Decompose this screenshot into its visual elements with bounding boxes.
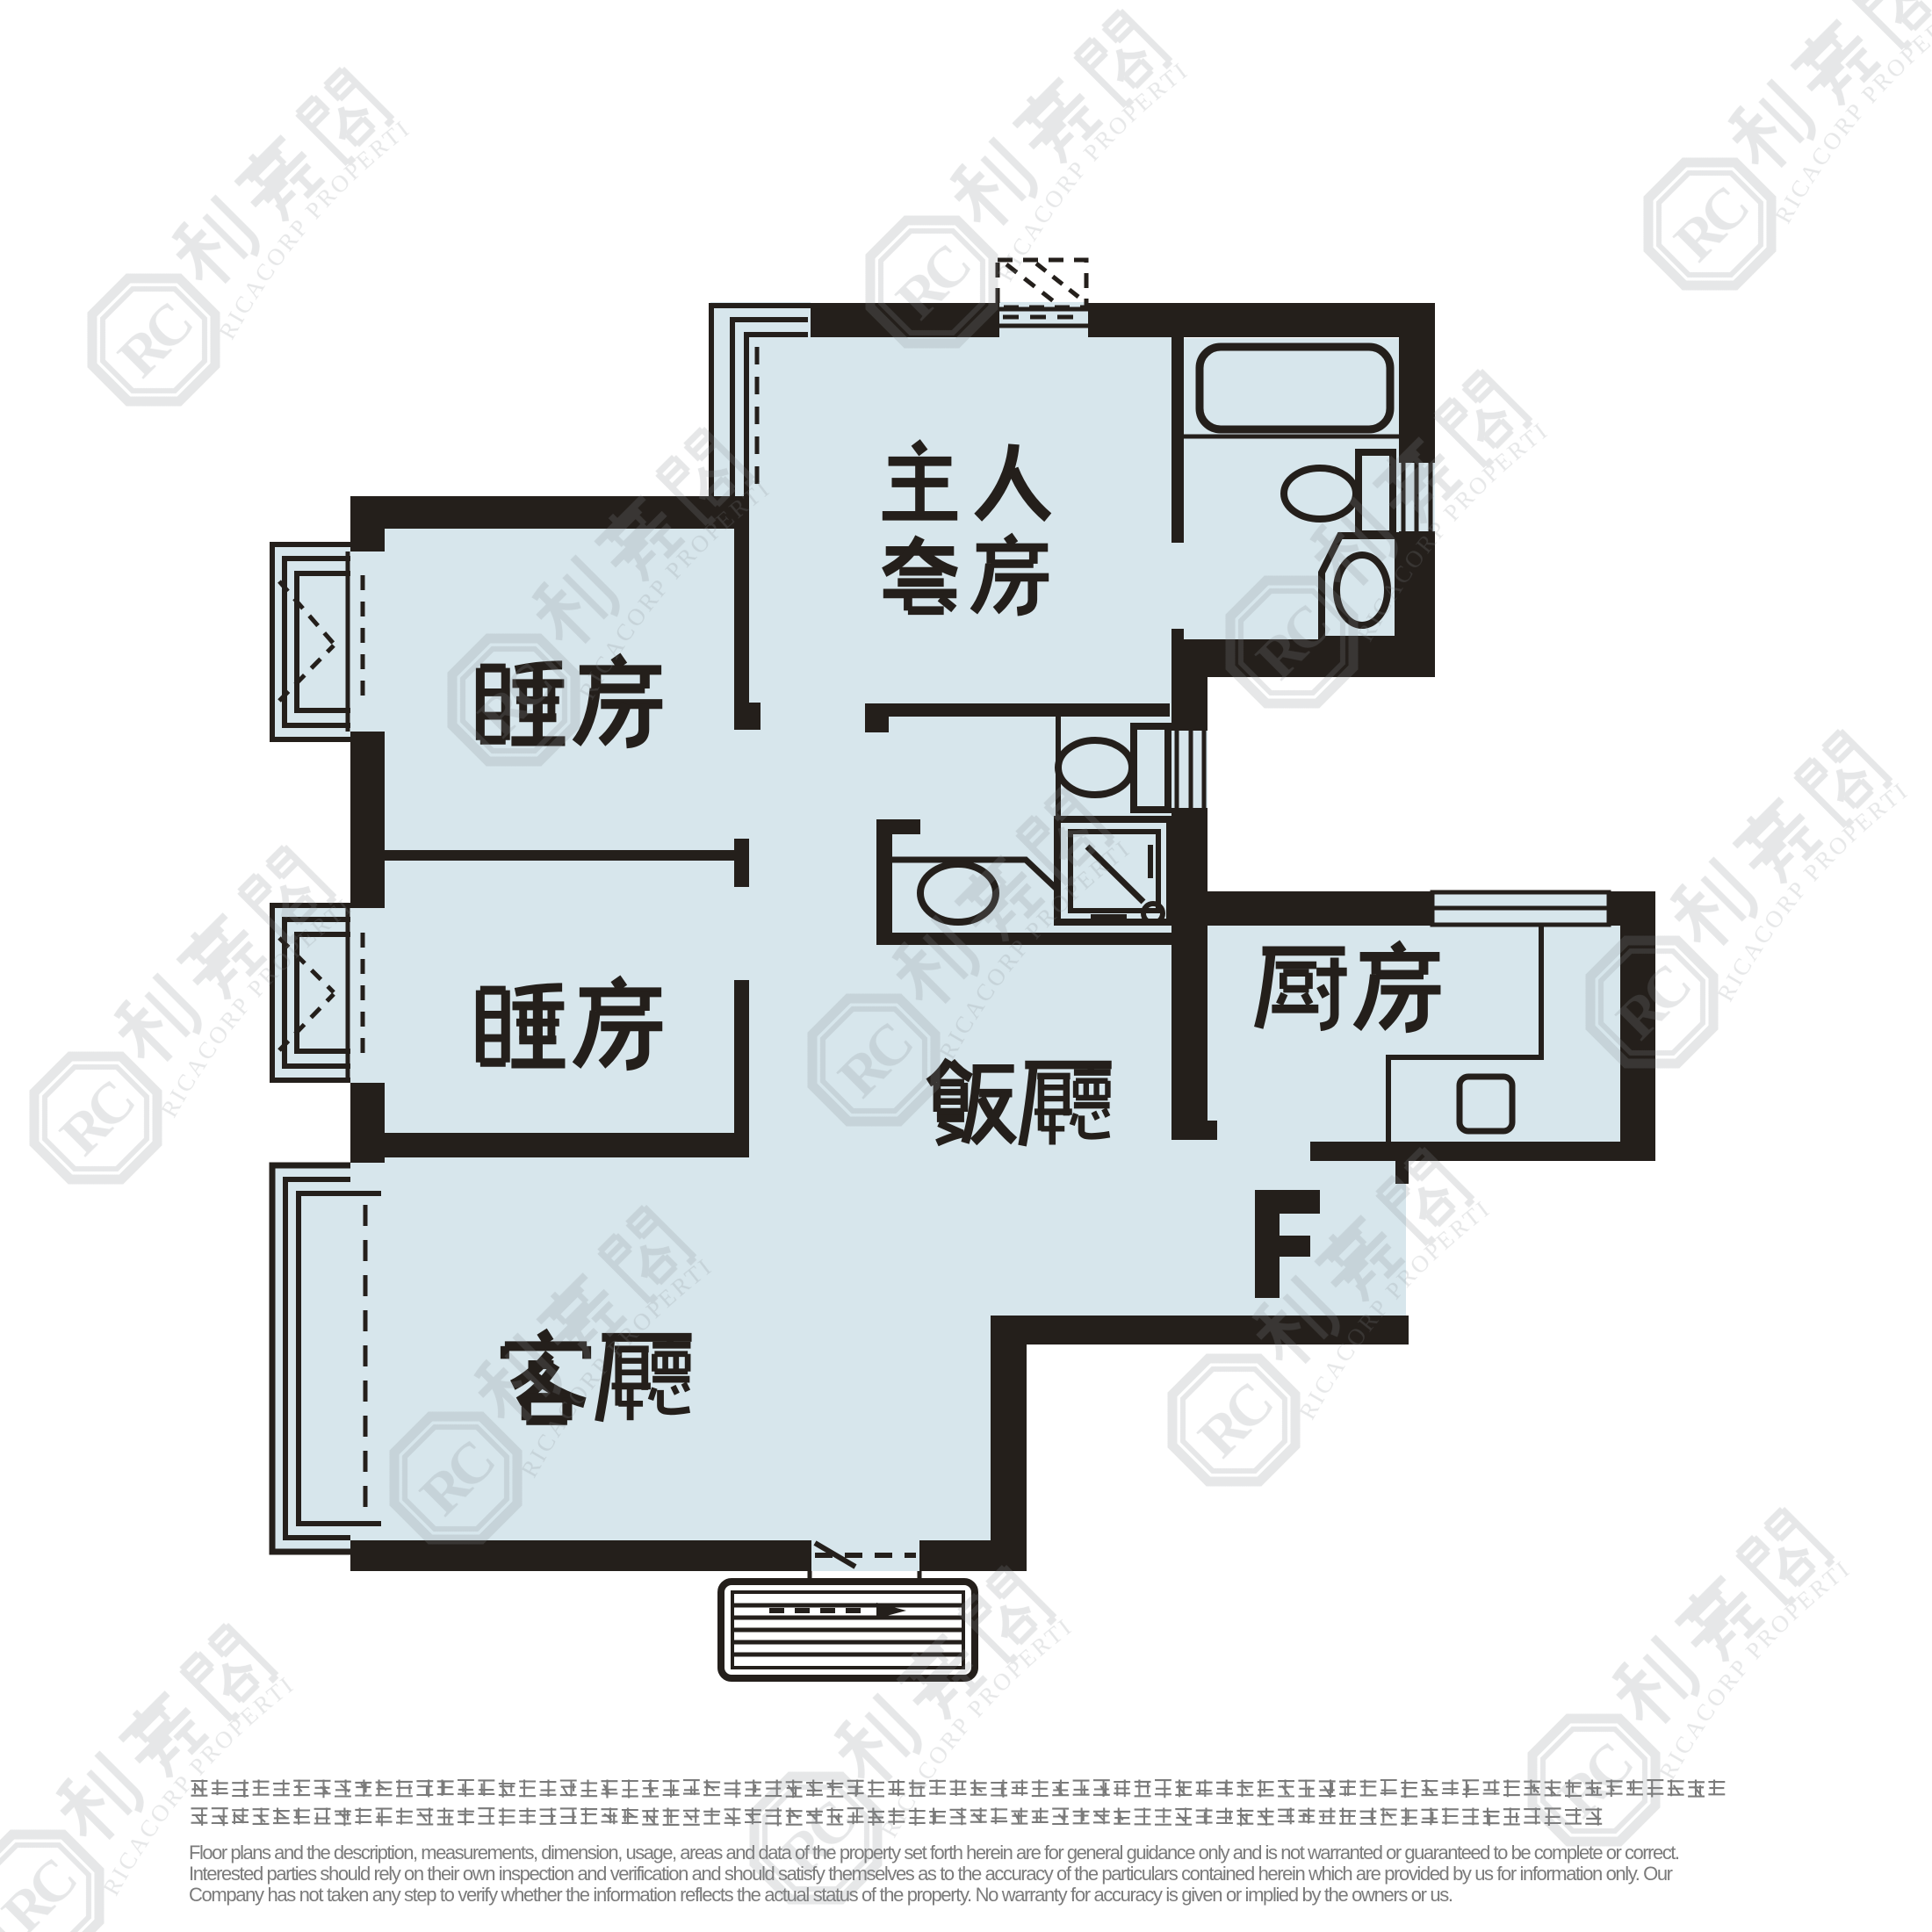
svg-text:Floor plans and the descriptio: Floor plans and the description, measure… — [189, 1842, 1680, 1864]
svg-text:Interested parties should rely: Interested parties should rely on their … — [189, 1863, 1673, 1885]
